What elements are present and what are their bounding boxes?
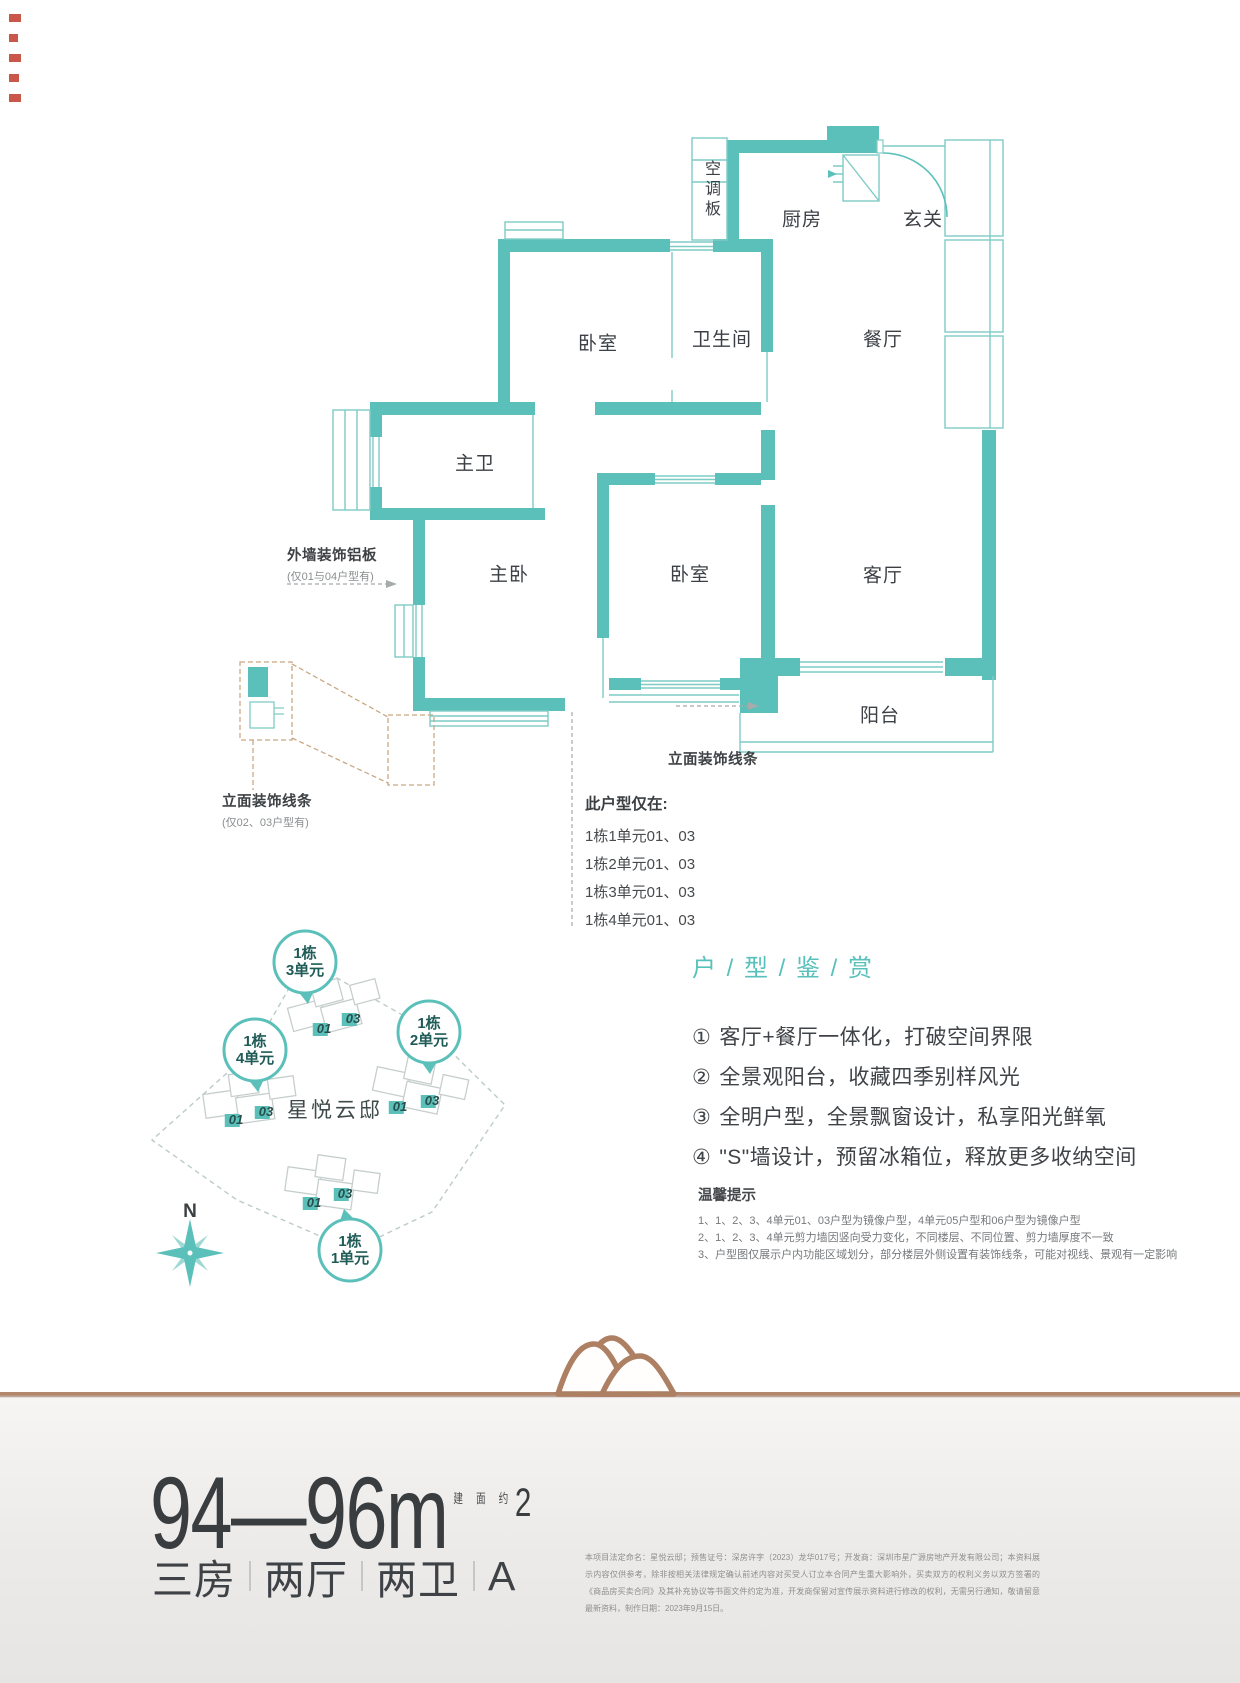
features-heading: 户 / 型 / 鉴 / 赏 (692, 948, 1192, 983)
unit-marker: 01 (229, 1111, 243, 1129)
annotation-exterior-panel: 外墙装饰铝板 (仅01与04户型有) (287, 544, 377, 584)
room-label-bedroom1: 卧室 (578, 329, 618, 356)
features-block: 户 / 型 / 鉴 / 赏 ① 客厅+餐厅一体化，打破空间界限 ② 全景观阳台，… (692, 948, 1192, 1187)
red-print-mark (9, 54, 21, 62)
project-name: 星悦云邸 (287, 1094, 383, 1124)
tips-title: 温馨提示 (698, 1184, 1177, 1205)
availability-title: 此户型仅在: (585, 792, 695, 814)
north-label: N (183, 1201, 197, 1223)
unit-circle-label-4: 1栋 4单元 (236, 1033, 274, 1067)
red-print-mark (9, 74, 19, 82)
room-label-kitchen: 厨房 (782, 205, 822, 232)
layout-rooms: 三房 (152, 1546, 236, 1606)
feature-item: ④ "S"墙设计，预留冰箱位，释放更多收纳空间 (692, 1147, 1192, 1169)
layout-separator (473, 1561, 475, 1591)
unit-marker: 03 (346, 1010, 360, 1028)
red-print-mark (9, 34, 18, 42)
room-label-bedroom2: 卧室 (670, 560, 710, 587)
unit-marker: 03 (259, 1103, 273, 1121)
room-label-balcony: 阳台 (860, 701, 900, 728)
layout-type: A (488, 1553, 516, 1600)
availability-item: 1栋2单元01、03 (585, 851, 695, 879)
unit-marker: 03 (425, 1092, 439, 1110)
unit-marker: 03 (338, 1185, 352, 1203)
red-print-mark (9, 14, 21, 22)
compass-icon (156, 1219, 224, 1287)
layout-row: 三房 两厅 两卫 A (152, 1546, 516, 1606)
layout-halls: 两厅 (264, 1546, 348, 1606)
room-label-ac-board: 空调板 (698, 160, 722, 220)
detail-callout-boxes (240, 662, 434, 790)
unit-marker: 01 (307, 1194, 321, 1212)
annotation-facade-line-left: 立面装饰线条 (仅02、03户型有) (222, 790, 312, 830)
annotation-facade-line-mid: 立面装饰线条 (668, 748, 758, 769)
availability-block: 此户型仅在: 1栋1单元01、03 1栋2单元01、03 1栋3单元01、03 … (585, 792, 695, 935)
building-cluster-1 (283, 1151, 381, 1213)
kitchen-fixture-arrow-icon (828, 170, 837, 178)
annotation-title: 立面装饰线条 (668, 748, 758, 769)
unit-circle-label-1: 1栋 1单元 (331, 1233, 369, 1267)
room-label-master-bedroom: 主卧 (489, 560, 529, 587)
tips-block: 温馨提示 1、1、2、3、4单元01、03户型为镜像户型，4单元05户型和06户… (698, 1184, 1177, 1264)
availability-item: 1栋4单元01、03 (585, 907, 695, 935)
unit-marker: 01 (393, 1098, 407, 1116)
feature-item: ③ 全明户型，全景飘窗设计，私享阳光鲜氧 (692, 1107, 1192, 1129)
tip-item: 1、1、2、3、4单元01、03户型为镜像户型，4单元05户型和06户型为镜像户… (698, 1213, 1177, 1230)
annotation-title: 外墙装饰铝板 (287, 544, 377, 565)
annotation-title: 立面装饰线条 (222, 790, 312, 811)
layout-separator (361, 1561, 363, 1591)
feature-item: ② 全景观阳台，收藏四季别样风光 (692, 1067, 1192, 1089)
room-label-master-bath: 主卫 (455, 449, 495, 476)
unit-marker: 01 (317, 1020, 331, 1038)
availability-item: 1栋1单元01、03 (585, 823, 695, 851)
area-note: 建 面 约 (453, 1488, 513, 1507)
room-label-bath: 卫生间 (692, 325, 752, 352)
layout-separator (249, 1561, 251, 1591)
floorplan-poster: 空调板 厨房 玄关 卧室 卫生间 餐厅 主卫 主卧 卧室 客厅 阳台 外墙装饰铝… (0, 0, 1240, 1683)
layout-baths: 两卫 (376, 1546, 460, 1606)
room-label-dining: 餐厅 (863, 325, 903, 352)
tip-item: 2、1、2、3、4单元剪力墙因竖向受力变化，不同楼层、不同位置、剪力墙厚度不一致 (698, 1230, 1177, 1247)
legal-disclaimer: 本项目法定命名：星悦云邸；预售证号：深房许字（2023）龙华017号；开发商：深… (585, 1549, 1040, 1617)
annotation-note: (仅01与04户型有) (287, 568, 377, 584)
feature-item: ① 客厅+餐厅一体化，打破空间界限 (692, 1027, 1192, 1049)
unit-circle-label-2: 1栋 2单元 (410, 1015, 448, 1049)
mountain-logo-icon (558, 1338, 674, 1394)
leader-arrowhead-icon (386, 580, 397, 588)
availability-item: 1栋3单元01、03 (585, 879, 695, 907)
annotation-note: (仅02、03户型有) (222, 814, 312, 830)
tip-item: 3、户型图仅展示户内功能区域划分，部分楼层外侧设置有装饰线条，可能对视线、景观有… (698, 1247, 1177, 1264)
room-label-living: 客厅 (863, 561, 903, 588)
room-label-foyer: 玄关 (903, 205, 943, 232)
red-print-mark (9, 94, 21, 102)
unit-circle-label-3: 1栋 3单元 (286, 945, 324, 979)
area-superscript: 2 (515, 1483, 531, 1523)
